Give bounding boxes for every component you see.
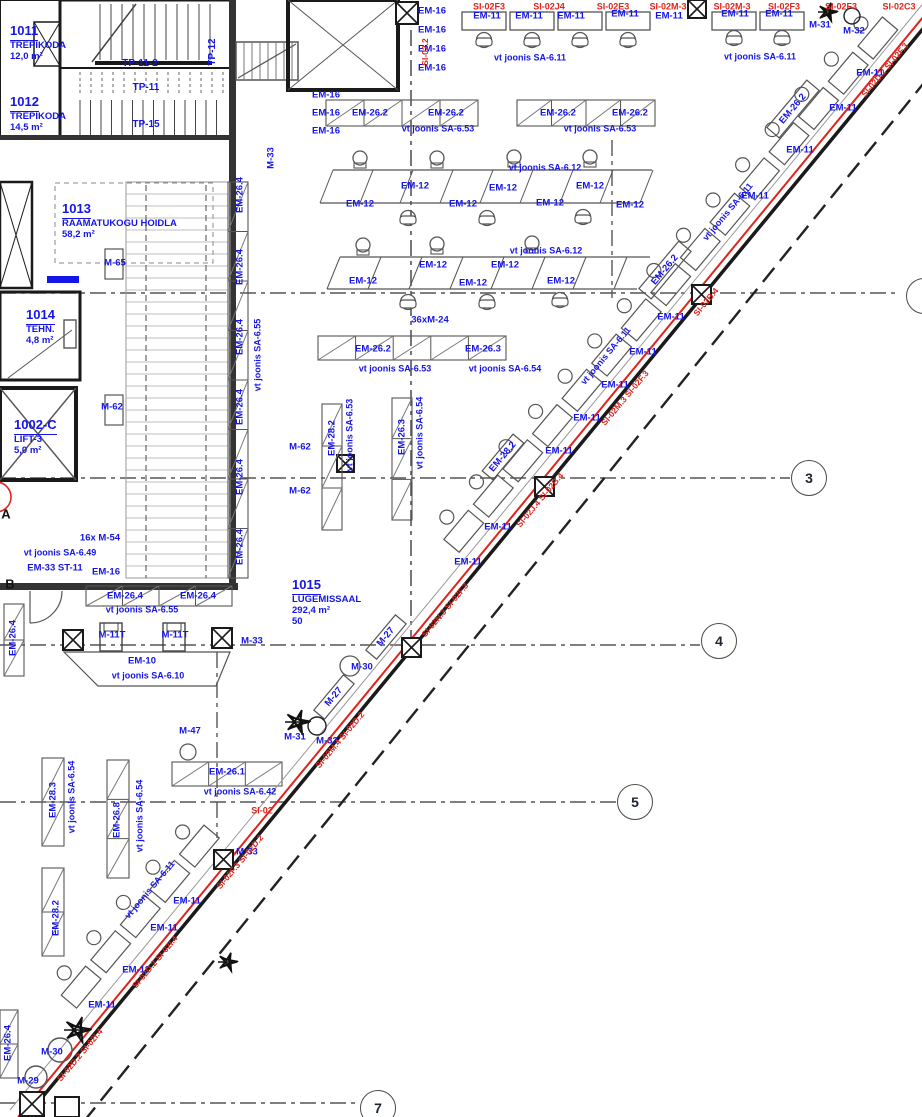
wall-line (520, 170, 533, 203)
annotation-em-12: EM-12 (576, 181, 604, 191)
annotation-em-11: EM-11 (173, 896, 200, 906)
chair-symbol (57, 966, 71, 980)
annotation-em-28-3: EM-28.3 (48, 782, 58, 818)
annotation-em-11: EM-11 (765, 9, 792, 19)
annotation-m-31: M-31 (284, 732, 306, 742)
annotation-m-62: M-62 (101, 402, 123, 412)
desk-outline (533, 405, 573, 447)
wall-line (320, 170, 333, 203)
annotation-em-11: EM-11 (88, 1000, 115, 1010)
room-label-1013: 1013RAAMATUKOGU HOIDLA58,2 m² (62, 200, 177, 241)
annotation-em-26-2: EM-26.2 (428, 108, 464, 118)
room-id: 1002-C (14, 418, 57, 435)
chair-symbol (588, 334, 602, 348)
wall-rect (64, 320, 76, 348)
annotation-m-47: M-47 (179, 726, 201, 736)
annotation-m-33: M-33 (241, 636, 263, 646)
annotation-vt-joonis-sa-6-49: vt joonis SA-6.49 (24, 549, 97, 558)
annotation-em-11: EM-11 (545, 446, 572, 456)
annotation-m-65: M-65 (104, 258, 126, 268)
annotation-vt-joonis-sa-6-54: vt joonis SA-6.54 (469, 365, 542, 374)
annotation-em-11: EM-11 (657, 312, 684, 322)
annotation-em-12: EM-12 (449, 199, 477, 209)
grid-bubble-5: 5 (617, 784, 653, 820)
chair-symbol (558, 369, 572, 383)
annotation-vt-joonis-sa-6-11: vt joonis SA-6.11 (494, 54, 566, 63)
plant-symbol (218, 953, 238, 971)
chair-symbol (529, 404, 543, 418)
annotation-em-11: EM-11 (473, 11, 500, 21)
annotation-vt-joonis-sa-6-54: vt joonis SA-6.54 (416, 397, 425, 470)
chair-symbol (736, 158, 750, 172)
wall-line (172, 762, 209, 786)
chair-symbol (765, 123, 779, 137)
expansion-joint-dashed (85, 0, 922, 1117)
wall-fill (0, 135, 232, 140)
chair-symbol (479, 300, 495, 308)
annotation-tp-15: TP-15 (132, 120, 159, 130)
annotation-vt-joonis-sa-6-10: vt joonis SA-6.10 (112, 672, 185, 681)
chair-symbol (524, 38, 540, 46)
wall-line (431, 336, 469, 360)
chair-symbol (552, 298, 568, 306)
grid-bubble-3: 3 (791, 460, 827, 496)
plant-symbol (285, 710, 311, 733)
annotation-em-12: EM-12 (491, 260, 519, 270)
room-label-1014: 1014TEHN.4,8 m² (26, 306, 55, 347)
annotation-em-16: EM-16 (312, 126, 340, 136)
chair-symbol (440, 510, 454, 524)
annotation-em-26-3: EM-26.3 (397, 419, 407, 455)
annotation-vt-joonis-sa-6-55: vt joonis SA-6.55 (254, 319, 263, 392)
annotation-em-11: EM-11 (829, 103, 856, 113)
annotation-m-31: M-31 (809, 20, 831, 30)
annotation-em-26-2: EM-26.2 (540, 108, 576, 118)
annotation-em-26-4: EM-26.4 (180, 591, 216, 601)
annotation-em-26-4: EM-26.4 (235, 319, 245, 355)
desk-outline (444, 510, 484, 552)
annotation-em-12: EM-12 (616, 200, 644, 210)
chair-symbol (824, 52, 838, 66)
room-area: 58,2 m² (62, 230, 177, 241)
annotation-vt-joonis-sa-6-53: vt joonis SA-6.53 (564, 125, 637, 134)
chair-symbol (400, 300, 416, 308)
annotation-em-12: EM-12 (401, 181, 429, 191)
annotation-em-26-4: EM-26.4 (235, 249, 245, 285)
annotation-em-16: EM-16 (312, 90, 340, 100)
annotation-em-16: EM-16 (312, 108, 340, 118)
annotation-vt-joonis-sa-6-42: vt joonis SA-6.42 (204, 788, 277, 797)
annotation-vt-joonis-sa-6-55: vt joonis SA-6.55 (106, 606, 179, 615)
wall-line (107, 839, 129, 878)
desk-em11-diagonal (444, 510, 484, 552)
annotation-m-30: M-30 (41, 1047, 63, 1057)
annotation-si-02: SI-02 (251, 807, 273, 816)
chair-symbol (476, 38, 492, 46)
annotation-em-12: EM-12 (419, 260, 447, 270)
diagonal-guide (10, 0, 922, 1110)
room-id: 1011 (10, 24, 38, 41)
wall-line (322, 488, 342, 530)
annotation-em-11: EM-11 (721, 9, 748, 19)
annotation-vt-joonis-sa-6-12: vt joonis SA-6.12 (510, 247, 583, 256)
room-label-1015: 1015LUGEMISSAAL292,4 m²50 (292, 576, 361, 628)
room-extra: 50 (292, 617, 361, 628)
annotation-em-26-4: EM-26.4 (235, 459, 245, 495)
annotation-em-26-4: EM-26.4 (235, 389, 245, 425)
room-label-1011: 1011TREPIKODA12,0 m² (10, 22, 66, 63)
grid-bubble-4: 4 (701, 623, 737, 659)
annotation-tp-11: TP-11 (133, 83, 160, 93)
wall-line (392, 479, 412, 520)
annotation-em-12: EM-12 (459, 278, 487, 288)
wall-line (393, 336, 431, 360)
annotation-16x-m-54: 16x M-54 (80, 533, 120, 543)
chair-symbol (479, 216, 495, 224)
desk-em11-diagonal (473, 475, 513, 517)
m32-circle (308, 717, 326, 735)
wall-line (614, 257, 627, 289)
annotation-em-11: EM-11 (655, 11, 682, 21)
annotation-em-11: EM-11 (629, 347, 656, 357)
room-id: 1012 (10, 95, 39, 112)
annotation-m-11t: M-11T (162, 630, 189, 640)
annotation-em-26-3: EM-26.3 (465, 344, 501, 354)
chair-symbol (400, 216, 416, 224)
desk-em11-diagonal (533, 405, 573, 447)
annotation-em-33-st-11: EM-33 ST-11 (27, 563, 82, 573)
room-area: 14,5 m² (10, 123, 66, 134)
annotation-vt-joonis-sa-6-11: vt joonis SA-6.11 (724, 53, 796, 62)
annotation-em-11: EM-11 (611, 9, 638, 19)
annotation-em-11: EM-11 (557, 11, 584, 21)
wall-rect (126, 182, 230, 578)
annotation-36xm-24: 36xM-24 (411, 315, 449, 325)
annotation-em-26-4: EM-26.4 (235, 529, 245, 565)
annotation-em-16: EM-16 (92, 567, 120, 577)
annotation-em-26-4: EM-26.4 (107, 591, 143, 601)
annotation-em-16: EM-16 (418, 25, 446, 35)
annotation-em-11: EM-11 (454, 557, 481, 567)
annotation-em-11: EM-11 (150, 923, 177, 933)
room-area: 12,0 m² (10, 52, 66, 63)
annotation-si-02c3: SI-02C3 (882, 3, 915, 12)
annotation-em-12: EM-12 (536, 198, 564, 208)
annotation-em-12: EM-12 (489, 183, 517, 193)
wall-line (327, 257, 340, 289)
annotation-m-33: M-33 (266, 147, 276, 169)
wall-line (92, 4, 136, 62)
annotation-m-30: M-30 (351, 662, 373, 672)
annotation-m-29: M-29 (17, 1076, 39, 1086)
wall-line (245, 762, 282, 786)
annotation-em-28-2: EM-28.2 (327, 420, 337, 456)
room-id: 1013 (62, 202, 91, 219)
chair-symbol (774, 36, 790, 44)
annotation-vt-joonis-sa-6-53: vt joonis SA-6.53 (346, 399, 355, 472)
room-id: 1015 (292, 578, 321, 595)
annotation-m-11t: M-11T (99, 630, 126, 640)
annotation-em-26-2: EM-26.2 (612, 108, 648, 118)
chair-symbol (726, 36, 742, 44)
annotation-vt-joonis-sa-6-53: vt joonis SA-6.53 (402, 125, 475, 134)
annotation-m-32: M-32 (843, 26, 865, 36)
room-label-1012: 1012TREPIKODA14,5 m² (10, 93, 66, 134)
wall-line (318, 336, 356, 360)
room-label-1002-C: 1002-CLIFT-35,0 m² (14, 416, 57, 457)
annotation-em-26-4: EM-26.4 (3, 1025, 13, 1061)
chair-symbol (87, 931, 101, 945)
chair-symbol (572, 38, 588, 46)
room-area: 4,8 m² (26, 336, 55, 347)
annotation-em-26-8: EM-26.8 (112, 802, 122, 838)
room-area: 5,0 m² (14, 446, 57, 457)
annotation-em-11: EM-11 (573, 413, 600, 423)
desk-outline (473, 475, 513, 517)
door-swing (30, 591, 62, 623)
annotation-em-26-4: EM-26.4 (235, 177, 245, 213)
annotation-em-26-1: EM-26.1 (209, 767, 245, 777)
annotation-vt-joonis-sa-6-12: vt joonis SA-6.12 (509, 164, 582, 173)
annotation-em-10: EM-10 (128, 656, 156, 666)
floor-plan-canvas: 1011TREPIKODA12,0 m²1012TREPIKODA14,5 m²… (0, 0, 922, 1117)
chair-symbol (176, 825, 190, 839)
grid-letter-B: B (5, 577, 14, 592)
annotation-em-12: EM-12 (349, 276, 377, 286)
annotation-em-16: EM-16 (418, 6, 446, 16)
annotation-vt-joonis-sa-6-53: vt joonis SA-6.53 (359, 365, 432, 374)
legend-bar (47, 276, 79, 283)
annotation-em-12: EM-12 (346, 199, 374, 209)
chair-symbol (469, 475, 483, 489)
annotation-tp-12: TP-12 (208, 38, 218, 65)
wall-line (532, 257, 545, 289)
wall-line (640, 170, 653, 203)
annotation-si-02-2: SI-02.2 (421, 38, 430, 65)
annotation-em-11: EM-11 (515, 11, 542, 21)
annotation-em-11: EM-11 (484, 522, 511, 532)
annotation-m-62: M-62 (289, 486, 311, 496)
annotation-em-12: EM-12 (547, 276, 575, 286)
annotation-em-28-2: EM-28.2 (51, 900, 61, 936)
chair-symbol (620, 38, 636, 46)
chair-symbol (706, 193, 720, 207)
grid-letter-A: A (1, 507, 10, 522)
chair-symbol (676, 228, 690, 242)
annotation-em-26-2: EM-26.2 (352, 108, 388, 118)
annotation-si-02f3: SI-02F3 (825, 3, 857, 12)
wall-rect (55, 1097, 79, 1117)
annotation-em-11: EM-11 (786, 145, 813, 155)
annotation-tp-11-2: TP-11-2 (122, 59, 158, 69)
annotation-em-26-2: EM-26.2 (355, 344, 391, 354)
annotation-vt-joonis-sa-6-54: vt joonis SA-6.54 (136, 780, 145, 853)
annotation-vt-joonis-sa-6-54: vt joonis SA-6.54 (68, 761, 77, 834)
annotation-m-62: M-62 (289, 442, 311, 452)
m47-circle (180, 744, 196, 760)
wall-line (107, 760, 129, 799)
chair-symbol (617, 299, 631, 313)
annotation-em-26-4: EM-26.4 (8, 620, 18, 656)
room-id: 1014 (26, 308, 55, 325)
chair-symbol (575, 215, 591, 223)
